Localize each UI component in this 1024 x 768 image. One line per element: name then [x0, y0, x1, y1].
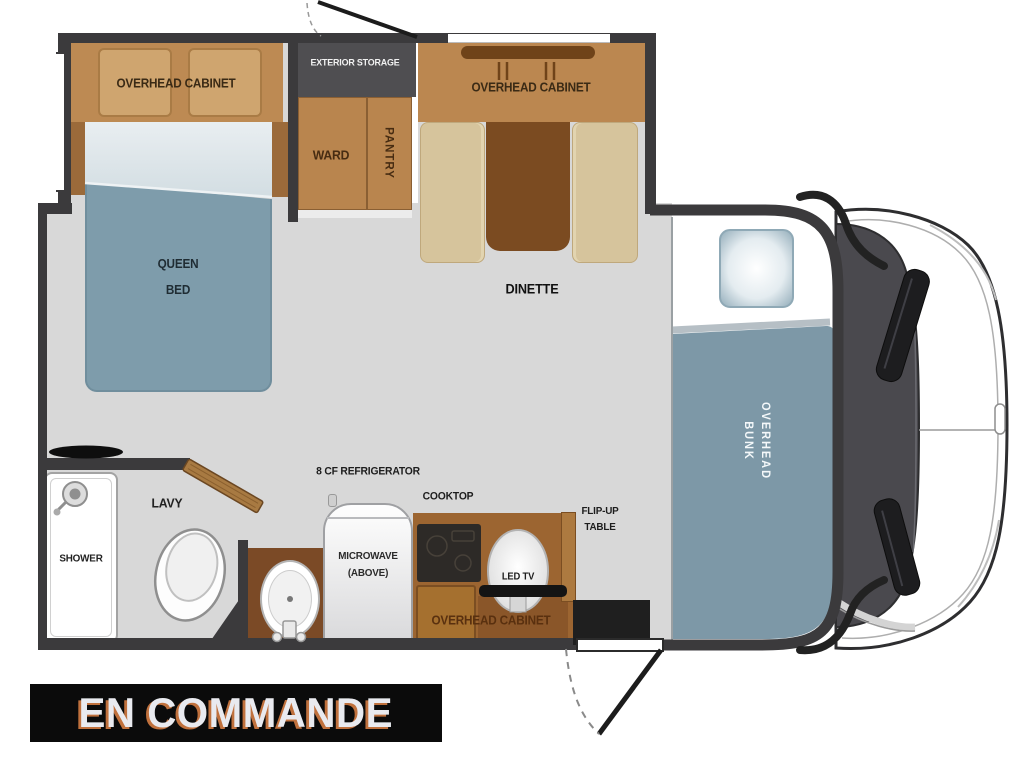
- exterior-storage-label: EXTERIOR STORAGE: [310, 56, 399, 71]
- bunk-pillow: [720, 230, 793, 307]
- dinette-bench-right: [572, 122, 638, 263]
- flip-up-table: [561, 512, 576, 602]
- dinette-window: [448, 34, 610, 43]
- entry-step-well: [573, 600, 663, 645]
- dinette-bench-left: [420, 122, 485, 263]
- shower-label: SHOWER: [59, 552, 102, 567]
- cab-body: [836, 209, 1007, 648]
- rv-floorplan: OVERHEAD CABINET EXTERIOR STORAGE WARD P…: [0, 0, 1024, 768]
- wall-bathroom-top: [38, 458, 190, 470]
- pantry-divider: [366, 97, 368, 210]
- order-status-banner: EN COMMANDE: [30, 684, 442, 742]
- dinette-overhead-cabinet-label: OVERHEAD CABINET: [471, 81, 590, 96]
- wardrobe-label: WARD: [313, 148, 350, 163]
- cooktop-surface: [417, 524, 481, 582]
- refrigerator-seam: [327, 517, 409, 519]
- nightstand-right: [270, 122, 288, 197]
- overhead-bunk-mattress: [672, 326, 834, 639]
- dinette-label: DINETTE: [506, 282, 559, 297]
- side-mirror-top: [800, 195, 932, 384]
- cab-windshield: [836, 224, 919, 627]
- entry-door: [566, 639, 663, 734]
- dinette-table: [486, 122, 570, 251]
- wall-left-lower: [38, 203, 47, 650]
- order-status-text: EN COMMANDE: [79, 689, 393, 737]
- pantry-label: PANTRY: [382, 127, 397, 179]
- side-mirror-bottom: [800, 496, 922, 650]
- exterior-storage-door: [307, 2, 417, 37]
- entry-door-swing: [599, 650, 661, 734]
- wall-wardrobe-left: [288, 33, 298, 222]
- wardrobe-base-strip: [296, 210, 412, 218]
- wall-dinette-right: [645, 33, 656, 214]
- overhead-bunk-label: OVERHEAD BUNK: [739, 402, 773, 480]
- cooktop-label: COOKTOP: [423, 490, 474, 505]
- led-tv-label: LED TV: [502, 570, 534, 585]
- microwave-label: MICROWAVE (ABOVE): [338, 548, 398, 582]
- refrigerator-hinge: [328, 494, 337, 507]
- vanity-sink-drain: [287, 596, 293, 602]
- bedroom-overhead-cabinet-label: OVERHEAD CABINET: [116, 77, 235, 92]
- wall-bathroom-divider: [238, 540, 248, 648]
- kitchen-overhead-cabinet-label: OVERHEAD CABINET: [431, 614, 550, 629]
- lavatory-label: LAVY: [152, 496, 183, 511]
- flip-up-table-label: FLIP-UP TABLE: [581, 503, 618, 535]
- cab-running-board: [838, 602, 915, 627]
- bedroom-window: [56, 52, 64, 192]
- queen-bed-label: QUEEN BED: [158, 251, 199, 303]
- refrigerator-label: 8 CF REFRIGERATOR: [316, 465, 420, 480]
